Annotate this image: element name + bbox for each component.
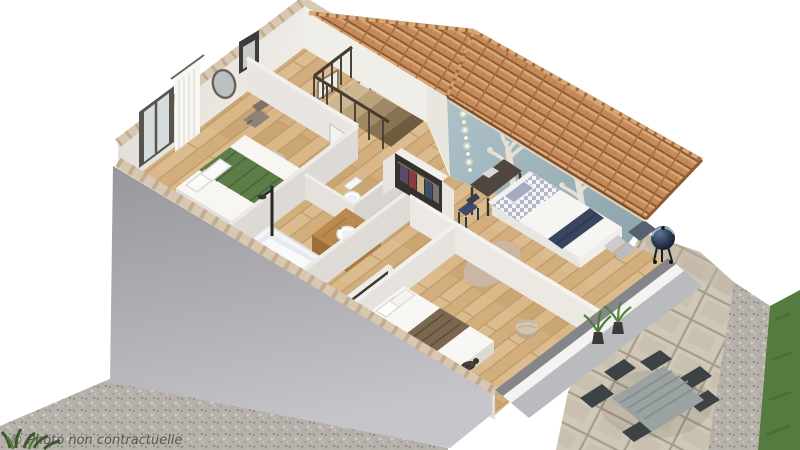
lid-handle xyxy=(661,226,665,230)
faucet xyxy=(338,226,341,229)
floorplan-render: © Photo non contractuelle xyxy=(0,0,800,450)
pouf xyxy=(516,320,538,339)
barbecue xyxy=(651,226,675,264)
watermark-text: © Photo non contractuelle xyxy=(10,433,182,448)
screenshot-root: © Photo non contractuelle xyxy=(0,0,800,450)
